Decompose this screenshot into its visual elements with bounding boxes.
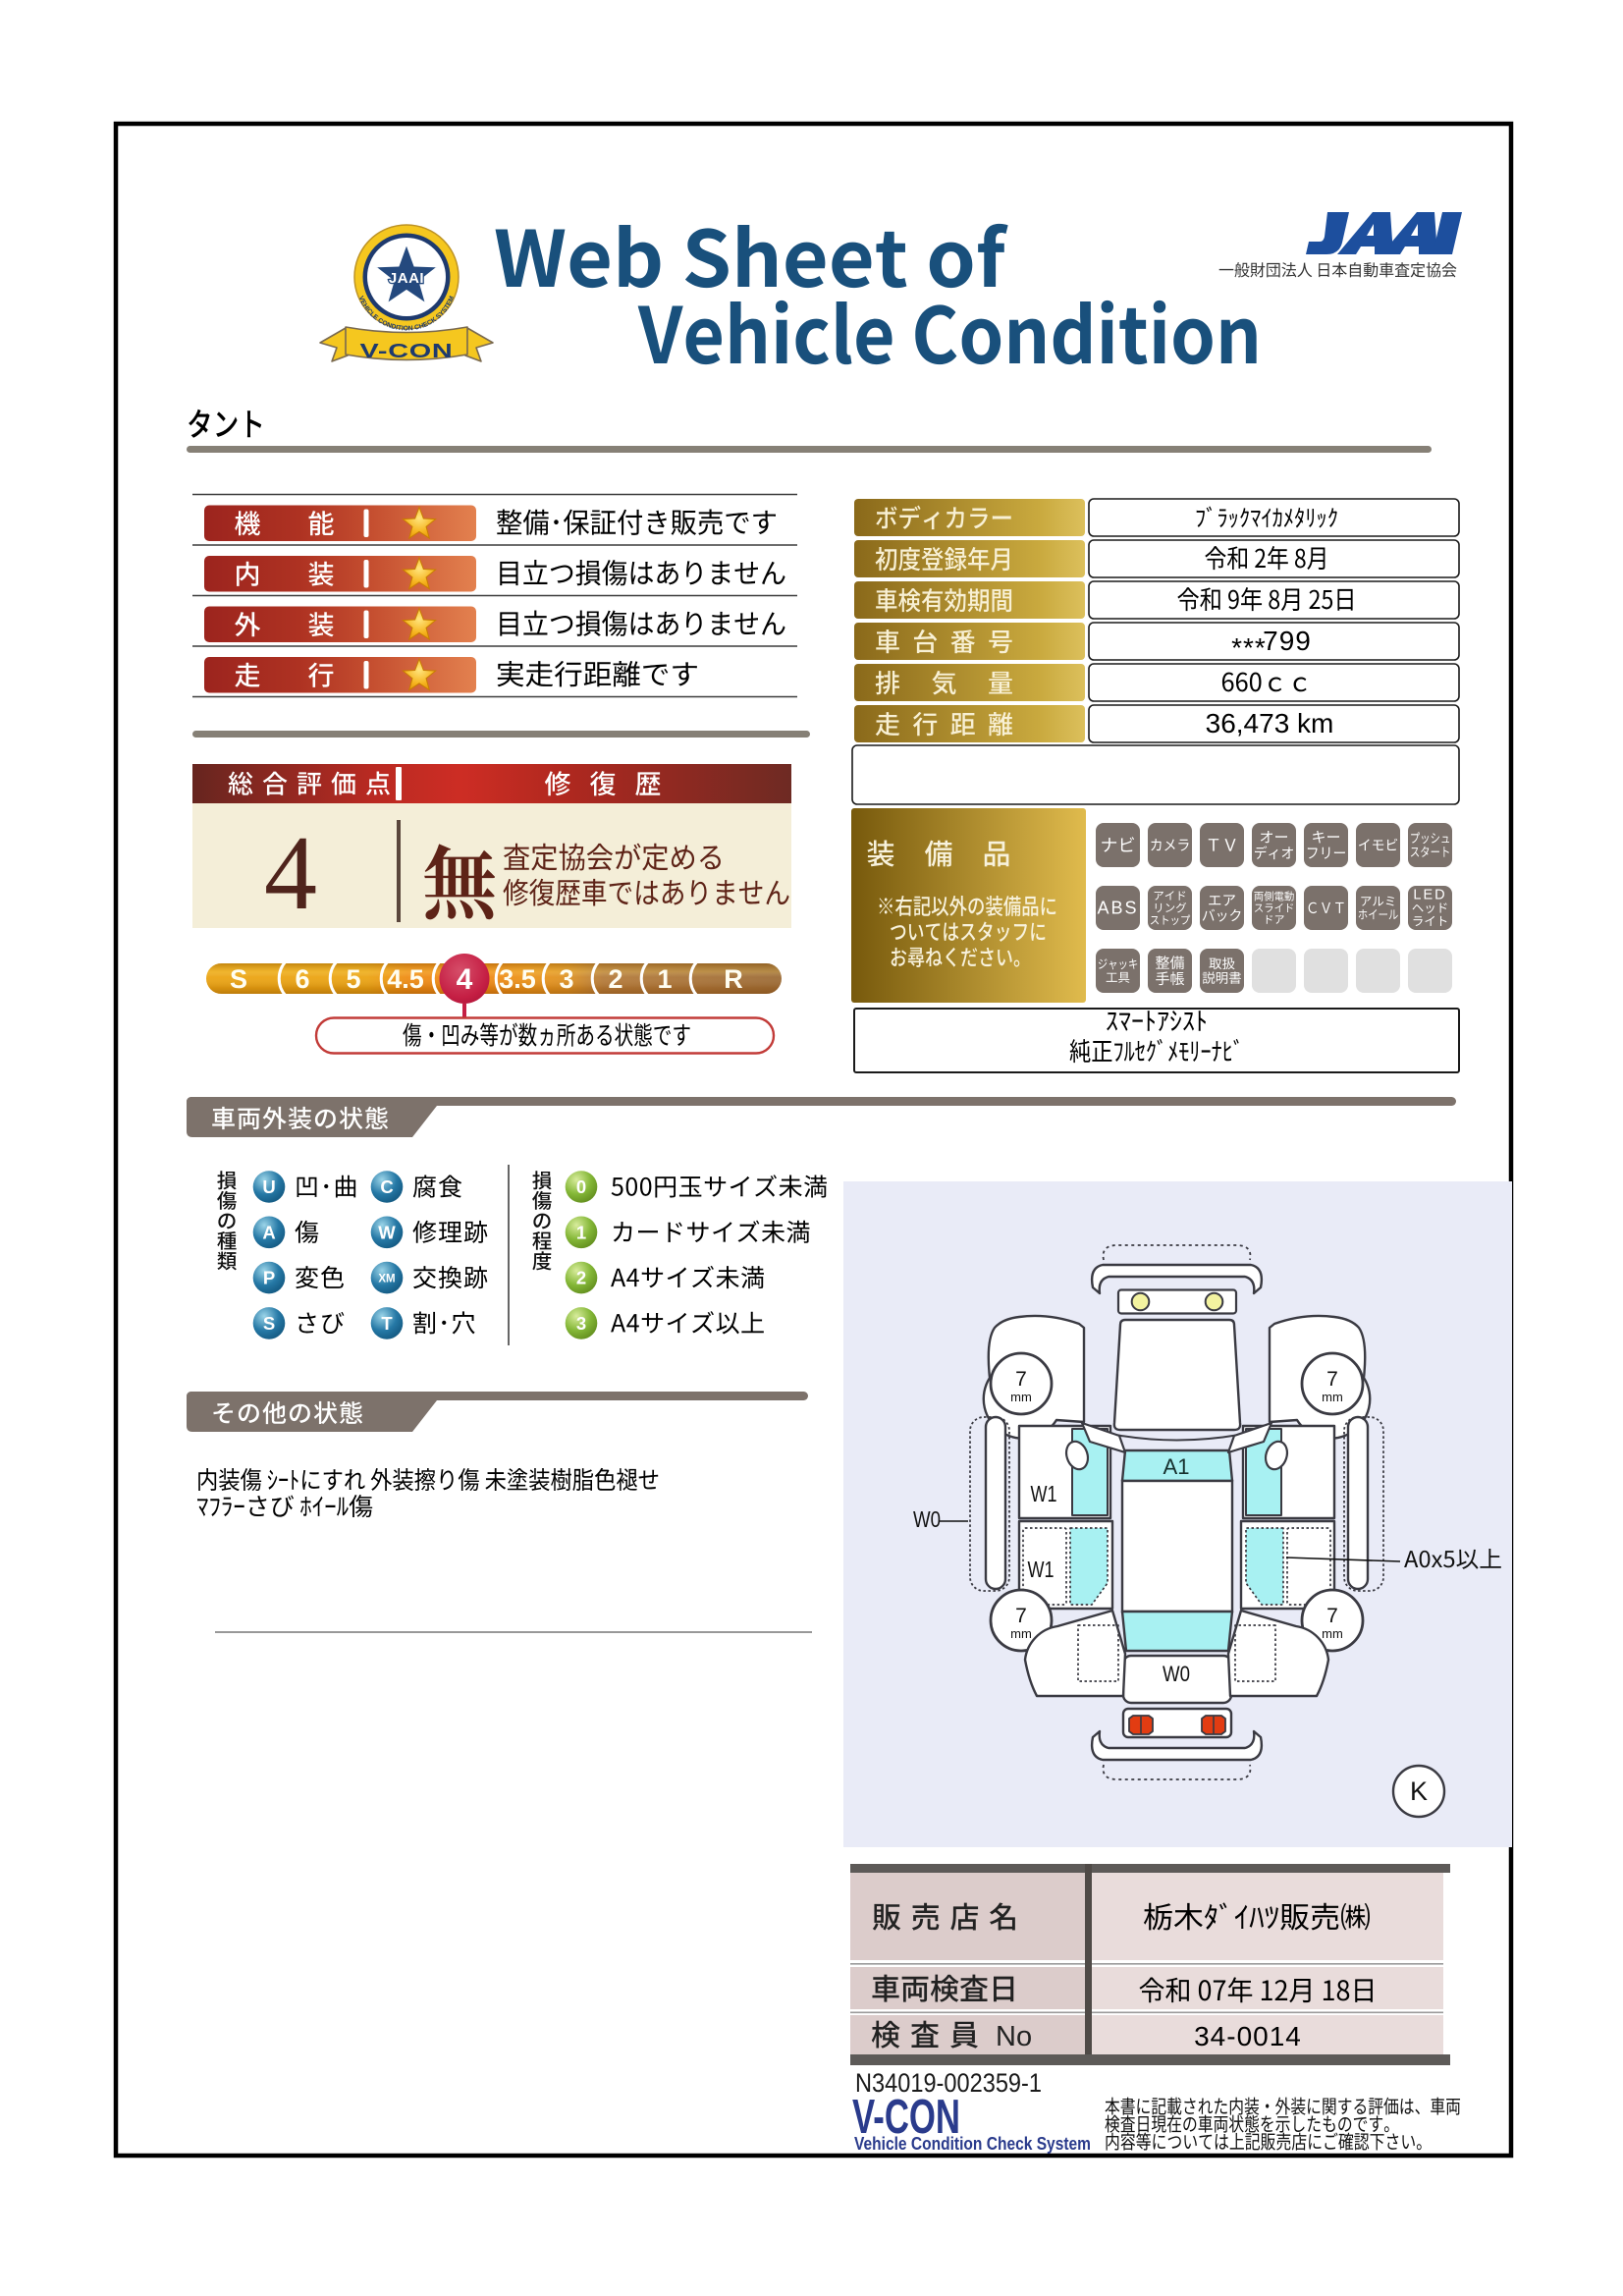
svg-text:LED: LED xyxy=(1413,888,1446,903)
svg-text:3.5: 3.5 xyxy=(499,964,536,994)
svg-text:XM: XM xyxy=(378,1274,395,1285)
svg-text:C: C xyxy=(380,1176,393,1197)
svg-text:W0: W0 xyxy=(1163,1662,1190,1686)
svg-text:S: S xyxy=(263,1313,275,1334)
svg-text:K: K xyxy=(1410,1777,1428,1806)
svg-text:U: U xyxy=(262,1176,275,1197)
svg-text:7: 7 xyxy=(1015,1605,1027,1627)
svg-text:1: 1 xyxy=(657,964,672,994)
svg-text:3: 3 xyxy=(576,1313,586,1334)
svg-text:mm: mm xyxy=(1322,1626,1343,1641)
svg-text:6: 6 xyxy=(295,964,309,994)
svg-text:mm: mm xyxy=(1010,1626,1032,1641)
svg-text:34-0014: 34-0014 xyxy=(1194,2021,1302,2051)
svg-text:7: 7 xyxy=(1015,1368,1027,1391)
svg-text:36,473 km: 36,473 km xyxy=(1206,708,1334,738)
svg-text:0: 0 xyxy=(576,1176,586,1197)
svg-text:A1: A1 xyxy=(1163,1454,1190,1479)
svg-text:***: *** xyxy=(1231,632,1267,663)
svg-text:4: 4 xyxy=(457,963,473,996)
svg-text:W1: W1 xyxy=(1028,1557,1055,1582)
svg-text:T: T xyxy=(381,1313,393,1334)
svg-text:P: P xyxy=(263,1268,275,1288)
svg-text:Vehicle Condition Check System: Vehicle Condition Check System xyxy=(854,2134,1091,2154)
svg-text:ABS: ABS xyxy=(1097,898,1138,917)
svg-text:W: W xyxy=(378,1222,396,1242)
svg-text:mm: mm xyxy=(1010,1390,1032,1404)
svg-text:7: 7 xyxy=(1326,1605,1338,1627)
svg-text:JAAI: JAAI xyxy=(389,270,424,287)
svg-text:5: 5 xyxy=(346,964,360,994)
svg-text:A: A xyxy=(262,1222,275,1242)
svg-text:R: R xyxy=(724,964,743,994)
svg-text:2: 2 xyxy=(576,1268,586,1288)
svg-text:4: 4 xyxy=(264,815,317,932)
svg-text:2: 2 xyxy=(608,964,622,994)
svg-text:No: No xyxy=(996,2021,1032,2052)
svg-text:W1: W1 xyxy=(1031,1481,1057,1506)
svg-text:7: 7 xyxy=(1326,1368,1338,1391)
svg-text:V-CON: V-CON xyxy=(360,341,454,362)
svg-text:S: S xyxy=(230,964,247,994)
svg-text:mm: mm xyxy=(1322,1390,1343,1404)
svg-text:3: 3 xyxy=(559,964,573,994)
svg-text:W0: W0 xyxy=(913,1506,941,1532)
svg-text:4.5: 4.5 xyxy=(387,964,424,994)
svg-text:1: 1 xyxy=(576,1222,586,1242)
svg-text:799: 799 xyxy=(1263,626,1312,656)
